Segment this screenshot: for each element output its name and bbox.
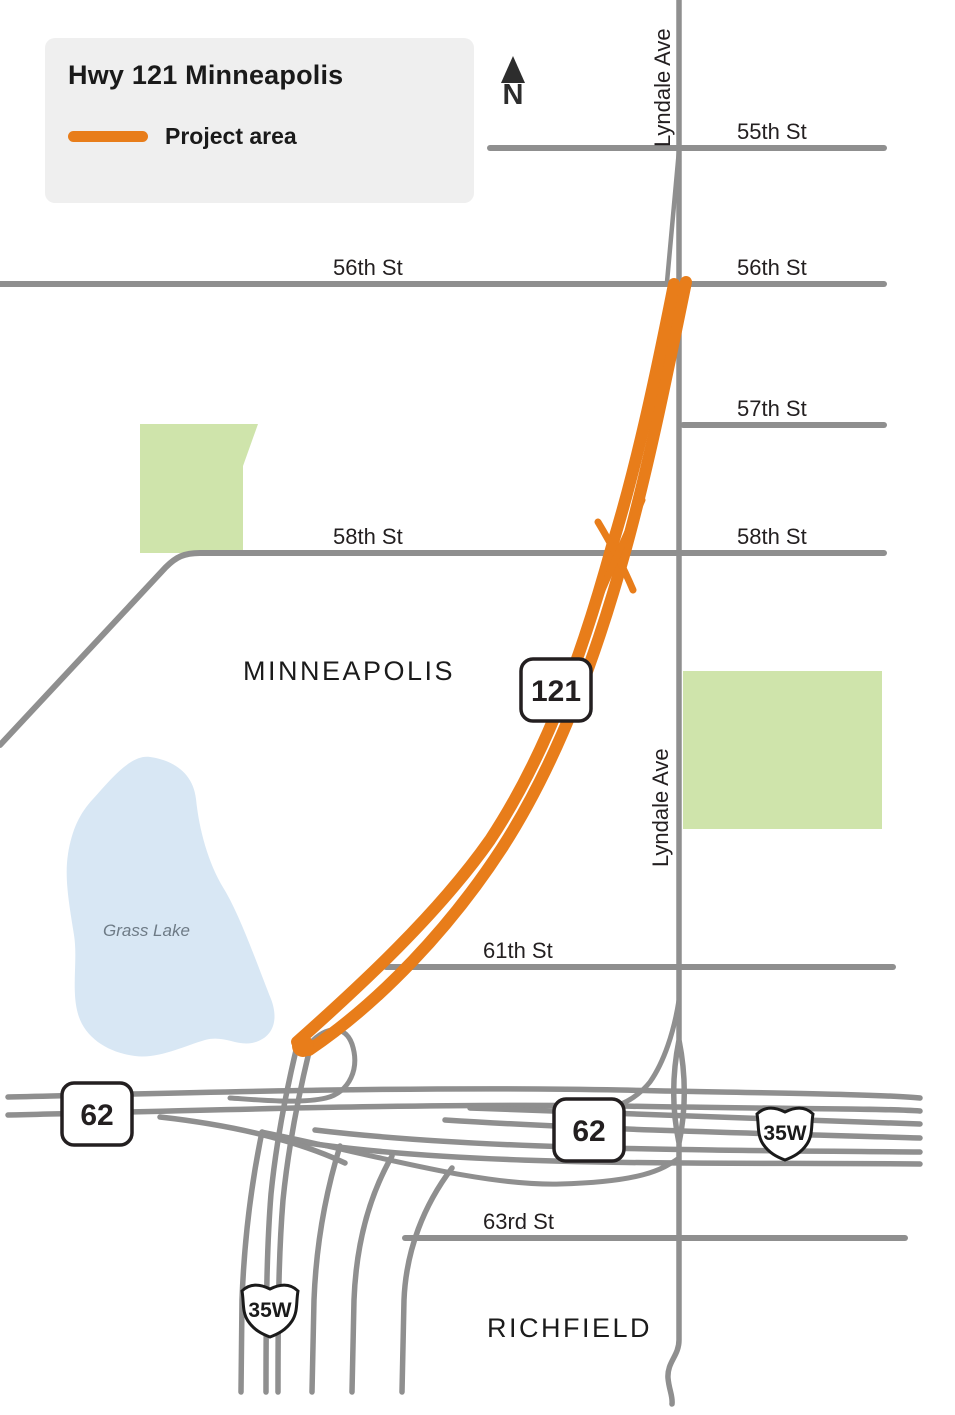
- shield-35w-south-number: 35W: [248, 1299, 291, 1322]
- map-title: Hwy 121 Minneapolis: [68, 60, 474, 91]
- shield-35w-east-number: 35W: [763, 1122, 806, 1145]
- shield-121-number: 121: [531, 675, 581, 708]
- map-canvas: 121 62 62 35W 35W 55th St 56th St 56th S…: [0, 0, 955, 1415]
- shield-62-west-number: 62: [80, 1099, 113, 1132]
- label-56th-st-right: 56th St: [737, 255, 807, 280]
- project-area-line-swatch: [68, 131, 148, 142]
- i35w-lane-3: [312, 1146, 340, 1392]
- label-grass-lake: Grass Lake: [103, 921, 190, 940]
- label-57th-st: 57th St: [737, 396, 807, 421]
- label-58th-st-right: 58th St: [737, 524, 807, 549]
- label-lyndale-ave-mid: Lyndale Ave: [648, 748, 673, 867]
- north-arrow: N: [496, 56, 530, 110]
- hwy62-lane-1: [8, 1089, 920, 1098]
- i35w-lane-1: [402, 1168, 452, 1392]
- park-area-east: [683, 671, 882, 829]
- route-shield-62-center: 62: [554, 1099, 624, 1161]
- park-areas: [140, 424, 882, 829]
- label-56th-st-left: 56th St: [333, 255, 403, 280]
- lyndale-south-ramp: [588, 1000, 679, 1112]
- legend-project-area-row: Project area: [68, 123, 474, 150]
- map-svg: 121 62 62 35W 35W 55th St 56th St 56th S…: [0, 0, 955, 1415]
- grass-lake-water: [67, 757, 275, 1057]
- label-city-minneapolis: MINNEAPOLIS: [243, 656, 455, 686]
- label-63rd-st: 63rd St: [483, 1209, 554, 1234]
- shield-62-center-number: 62: [572, 1115, 605, 1148]
- route-shield-62-west: 62: [62, 1083, 132, 1145]
- label-city-richfield: RICHFIELD: [487, 1313, 652, 1343]
- project-south-endcap: [292, 1035, 314, 1057]
- north-arrow-letter: N: [503, 81, 524, 110]
- i35w-lane-6: [241, 1132, 262, 1392]
- i35w-lane-2: [352, 1156, 392, 1392]
- label-lyndale-ave-top: Lyndale Ave: [650, 28, 675, 147]
- label-61th-st: 61th St: [483, 938, 553, 963]
- route-shield-121: 121: [521, 659, 591, 721]
- park-area-west: [140, 424, 258, 553]
- legend-panel: Hwy 121 Minneapolis Project area: [45, 38, 474, 203]
- label-55th-st: 55th St: [737, 119, 807, 144]
- route-shield-35w-south: 35W: [242, 1285, 298, 1337]
- label-58th-st-left: 58th St: [333, 524, 403, 549]
- lyndale-ave-road: [668, 0, 684, 1404]
- project-area-label: Project area: [165, 123, 297, 150]
- hwy62-west-spur: [160, 1117, 345, 1163]
